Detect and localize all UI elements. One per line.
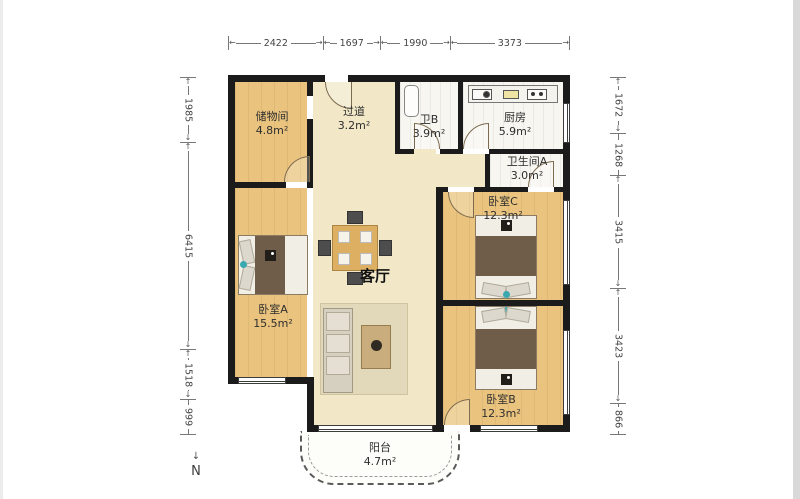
dim-segment: 1268: [610, 133, 626, 175]
dim-segment: ↑ 1985 ↓: [180, 77, 196, 142]
label-bedroom-c: 卧室C12.3m²: [468, 195, 538, 224]
arrow-up-icon: ↑: [185, 78, 192, 86]
dim-value: 1518: [183, 360, 194, 390]
page-edge-left: [0, 0, 3, 499]
label-storage: 储物间4.8m²: [242, 110, 302, 139]
dim-segment: ↑ 3415 ↓: [610, 175, 626, 288]
window: [563, 200, 570, 285]
label-bedroom-a: 卧室A15.5m²: [238, 303, 308, 332]
wall: [554, 187, 570, 192]
dim-value: 1985: [183, 95, 194, 125]
sofa-icon: [323, 308, 353, 393]
north-arrow-icon: ↓: [186, 452, 206, 462]
balcony-sliding-window: [318, 425, 433, 432]
arrow-down-icon: ↓: [185, 391, 192, 399]
sink-bowl-icon: [483, 91, 490, 98]
dimension-chain-right: ↑ 1672 ↓ 1268 ↑ 3415 ↓ ↑ 3423 ↓ 866: [610, 77, 626, 435]
dim-segment: ↑ 1672 ↓: [610, 77, 626, 133]
compass-north: ↓ N: [186, 452, 206, 483]
wall: [228, 75, 235, 384]
dim-value: 3415: [613, 217, 624, 247]
arrow-left-icon: ←: [381, 39, 388, 47]
label-kitchen: 厨房5.9m²: [483, 111, 547, 140]
arrow-up-icon: ↑: [615, 78, 622, 86]
wall: [458, 75, 463, 149]
window: [238, 377, 286, 384]
wall: [228, 75, 325, 82]
wall: [436, 187, 443, 432]
arrow-left-icon: ←: [229, 39, 236, 47]
dim-segment: ↑ 6415 ↓: [180, 142, 196, 349]
dim-value: 1697: [337, 38, 367, 49]
wall: [235, 182, 286, 188]
stove-icon: [503, 90, 519, 99]
arrow-up-icon: ↑: [615, 176, 622, 184]
dining-table-icon: [332, 225, 378, 271]
dining-chair-icon: [379, 240, 392, 256]
label-hallway: 过道3.2m²: [324, 105, 384, 134]
arrow-down-icon: ↓: [185, 134, 192, 142]
arrow-left-icon: ←: [451, 39, 458, 47]
burner-icon: [531, 92, 535, 96]
label-bath-b: 卫B3.9m²: [400, 113, 458, 142]
arrow-up-icon: ↑: [185, 143, 192, 151]
window: [563, 103, 570, 143]
dim-value: 3373: [495, 38, 525, 49]
dim-segment: ↑ 3423 ↓: [610, 288, 626, 402]
dimension-chain-top: ← 2422 → ← 1697 → ← 1990 → ← 3373 →: [228, 36, 570, 50]
dim-segment: ← 2422 →: [228, 36, 323, 50]
bed-icon: [475, 306, 537, 390]
arrow-down-icon: ↓: [615, 125, 622, 133]
arrow-down-icon: ↓: [185, 341, 192, 349]
wall: [489, 149, 570, 154]
label-living-room: 客厅: [340, 267, 410, 287]
page-edge-right: [793, 0, 800, 499]
dim-value: 1672: [613, 90, 624, 120]
wall: [436, 425, 444, 432]
label-balcony: 阳台4.7m²: [345, 441, 415, 470]
wall: [307, 377, 314, 432]
dim-value: 3423: [613, 331, 624, 361]
wall: [443, 300, 570, 306]
arrow-right-icon: →: [373, 39, 380, 47]
dim-segment: 866: [610, 403, 626, 435]
bed-icon: [475, 215, 537, 299]
dim-value: 1268: [613, 140, 624, 170]
arrow-right-icon: →: [443, 39, 450, 47]
dim-segment: 999: [180, 399, 196, 435]
arrow-right-icon: →: [562, 39, 569, 47]
dim-segment: ← 1697 →: [323, 36, 380, 50]
label-bath-a: 卫生间A3.0m²: [492, 155, 562, 184]
dim-value: 866: [613, 407, 624, 431]
floor-plan: 储物间4.8m² 过道3.2m² 卫B3.9m² 厨房5.9m² 卫生间A3.0…: [228, 75, 570, 431]
north-label: N: [186, 462, 206, 483]
burner-icon: [539, 92, 543, 96]
dim-segment: ← 1990 →: [380, 36, 450, 50]
corridor-floor: [436, 154, 485, 187]
floor-plan-page: ← 2422 → ← 1697 → ← 1990 → ← 3373 → ↑ 19…: [0, 0, 800, 499]
window: [480, 425, 538, 432]
arrow-left-icon: ←: [324, 39, 331, 47]
arrow-down-icon: ↓: [615, 280, 622, 288]
wall: [440, 149, 463, 154]
arrow-up-icon: ↑: [185, 350, 192, 358]
wall: [307, 82, 313, 96]
arrow-down-icon: ↓: [615, 395, 622, 403]
bed-icon: [238, 235, 308, 295]
dim-value: 1990: [400, 38, 430, 49]
dining-chair-icon: [347, 211, 363, 224]
dining-chair-icon: [318, 240, 331, 256]
wall: [470, 425, 480, 432]
coffee-table-icon: [361, 325, 391, 369]
dim-segment: ← 3373 →: [450, 36, 570, 50]
cooktop-icon: [527, 89, 547, 100]
dim-value: 999: [183, 405, 194, 429]
dim-value: 2422: [261, 38, 291, 49]
window: [563, 330, 570, 415]
dim-value: 6415: [183, 231, 194, 261]
dimension-chain-left: ↑ 1985 ↓ ↑ 6415 ↓ ↑ 1518 ↓ 999: [180, 77, 196, 435]
dim-segment: ↑ 1518 ↓: [180, 349, 196, 399]
kitchen-counter-icon: [468, 85, 558, 103]
arrow-right-icon: →: [316, 39, 323, 47]
wall: [474, 187, 528, 192]
label-bedroom-b: 卧室B12.3m²: [466, 393, 536, 422]
wall: [538, 425, 570, 432]
wall: [395, 149, 414, 154]
arrow-up-icon: ↑: [615, 289, 622, 297]
